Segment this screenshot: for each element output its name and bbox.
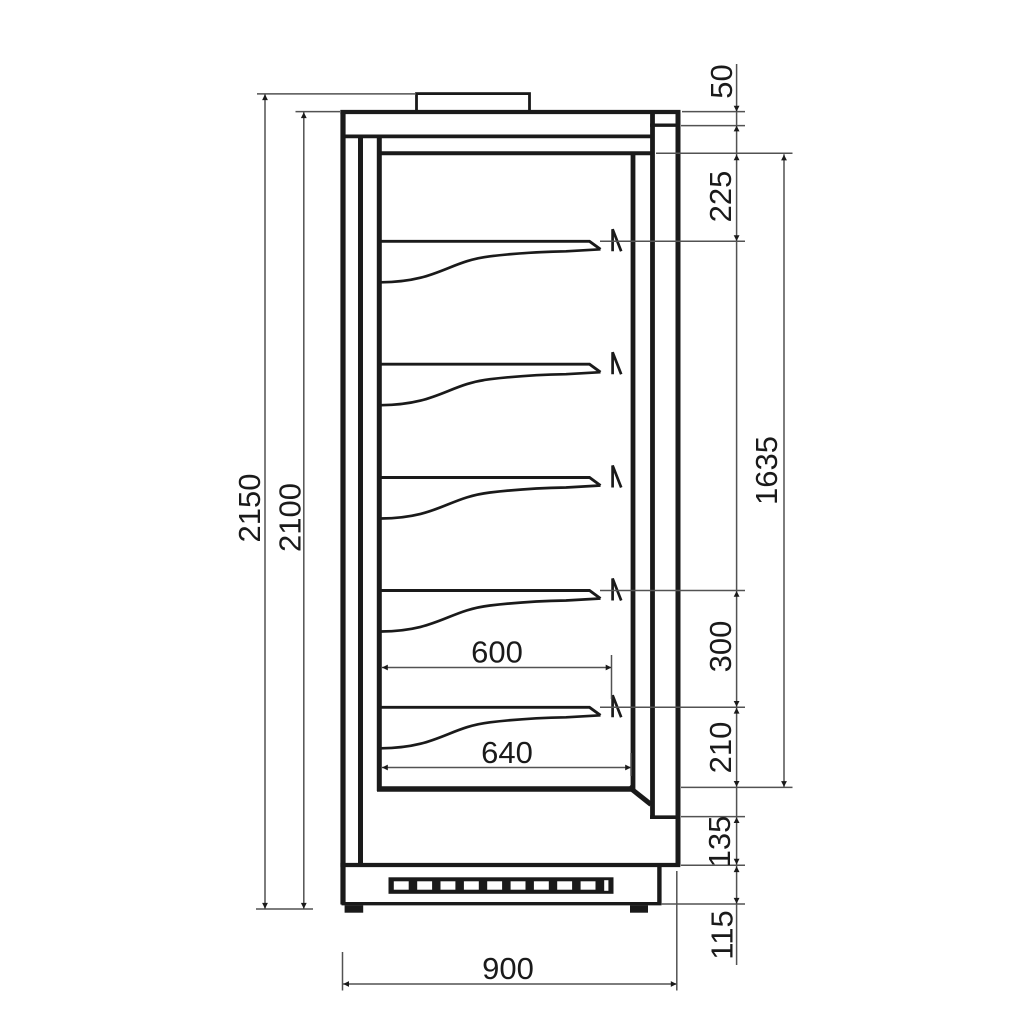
- svg-text:50: 50: [704, 64, 739, 98]
- svg-text:600: 600: [471, 635, 523, 670]
- svg-text:210: 210: [703, 722, 738, 774]
- svg-text:2150: 2150: [232, 474, 267, 543]
- svg-text:115: 115: [704, 910, 739, 959]
- svg-text:225: 225: [703, 171, 738, 223]
- svg-text:300: 300: [703, 621, 738, 673]
- svg-text:640: 640: [481, 735, 533, 770]
- svg-text:135: 135: [702, 816, 737, 868]
- svg-text:2100: 2100: [273, 483, 308, 552]
- svg-text:1635: 1635: [749, 436, 784, 505]
- svg-text:900: 900: [482, 951, 534, 986]
